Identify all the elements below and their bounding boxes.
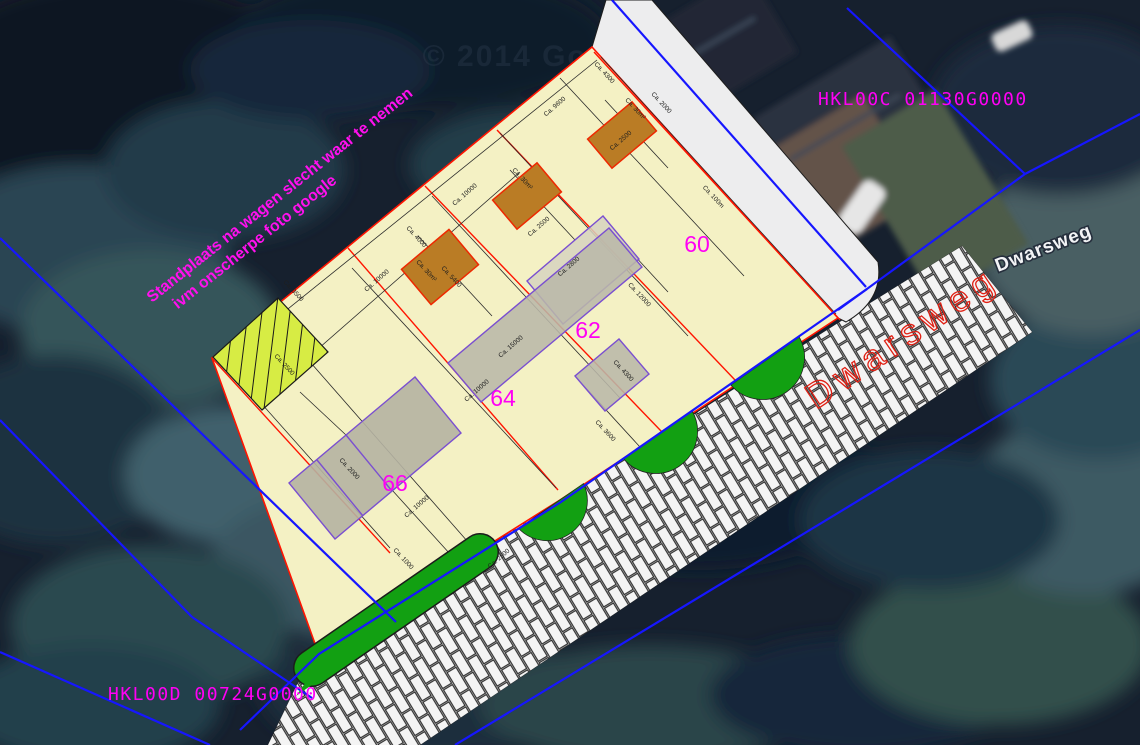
- parcel-number-label: 62: [575, 317, 601, 343]
- cadastral-label-bottom-left: HKL00D 00724G0000: [108, 684, 318, 705]
- cadastral-label-top-right: HKL00C 01130G0000: [818, 89, 1028, 110]
- parcel-number-label: 60: [684, 231, 710, 257]
- site-plan-map: © 2014 Google: [0, 0, 1140, 745]
- parcel-number-label: 64: [490, 385, 516, 411]
- map-viewport[interactable]: © 2014 Google: [0, 0, 1140, 745]
- parcel-number-label: 66: [382, 470, 408, 496]
